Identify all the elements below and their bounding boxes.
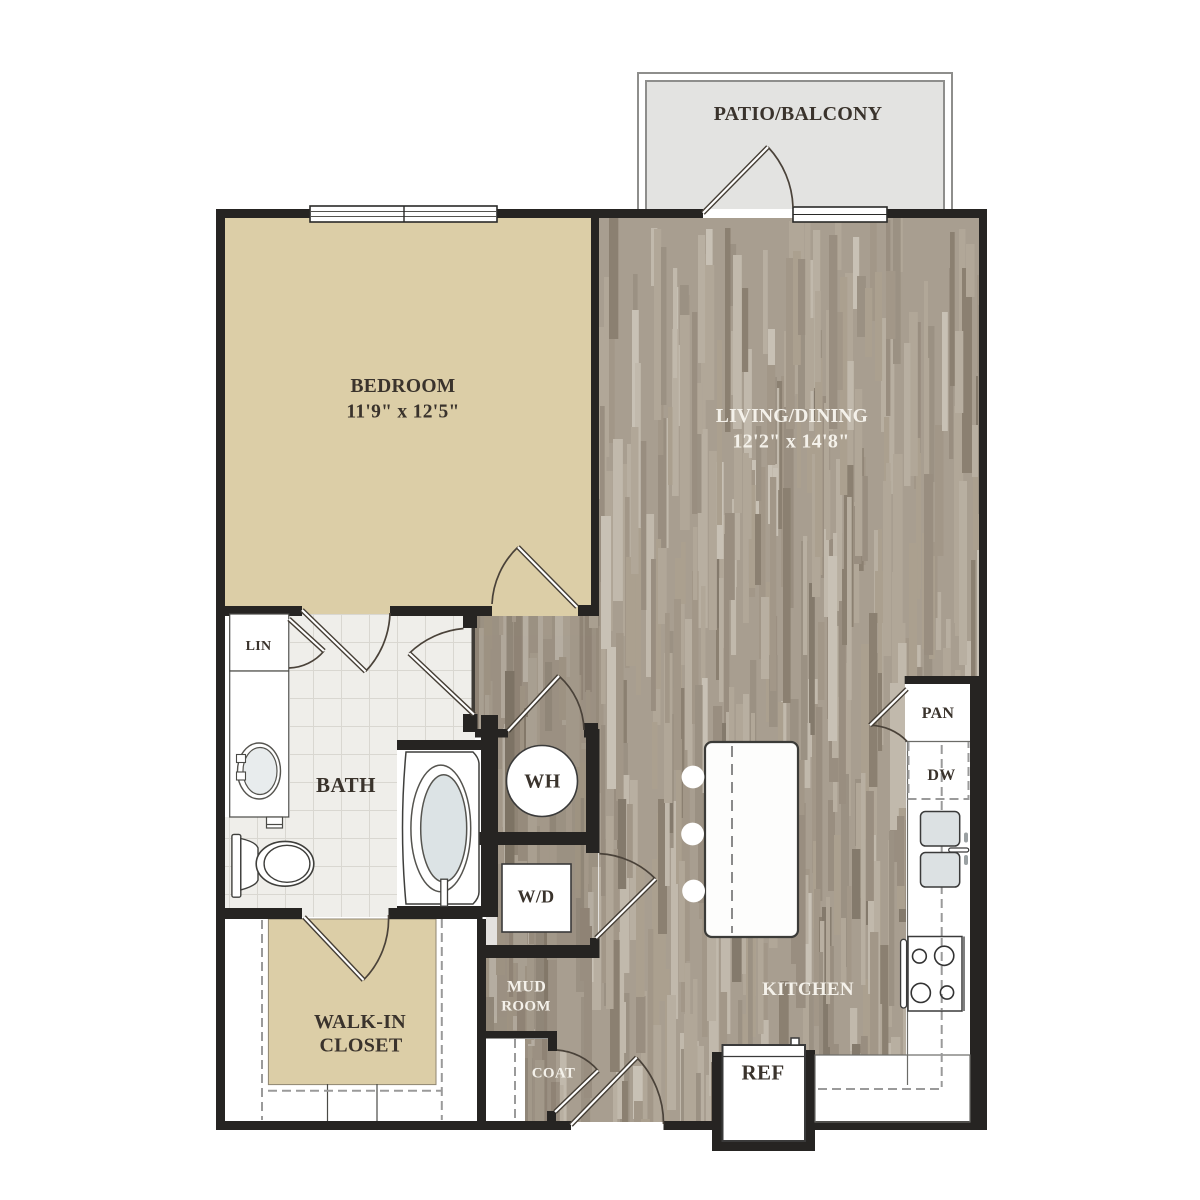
svg-text:PATIO/BALCONY: PATIO/BALCONY [714, 103, 883, 125]
svg-text:LIN: LIN [246, 639, 272, 654]
svg-text:WH: WH [524, 771, 561, 793]
svg-text:WALK-IN: WALK-IN [314, 1011, 406, 1033]
svg-text:CLOSET: CLOSET [320, 1035, 403, 1057]
svg-text:BATH: BATH [316, 773, 376, 797]
svg-text:ROOM: ROOM [501, 999, 551, 1015]
svg-text:KITCHEN: KITCHEN [762, 979, 854, 1000]
svg-text:REF: REF [742, 1061, 785, 1085]
svg-text:PAN: PAN [922, 705, 955, 722]
svg-text:BEDROOM: BEDROOM [350, 376, 455, 397]
svg-text:12'2" x 14'8": 12'2" x 14'8" [732, 431, 849, 453]
svg-text:11'9" x 12'5": 11'9" x 12'5" [346, 402, 459, 423]
svg-text:W/D: W/D [518, 887, 555, 907]
svg-text:LIVING/DINING: LIVING/DINING [716, 406, 868, 427]
svg-text:DW: DW [927, 767, 955, 784]
svg-text:COAT: COAT [532, 1066, 575, 1082]
svg-text:MUD: MUD [507, 979, 546, 996]
